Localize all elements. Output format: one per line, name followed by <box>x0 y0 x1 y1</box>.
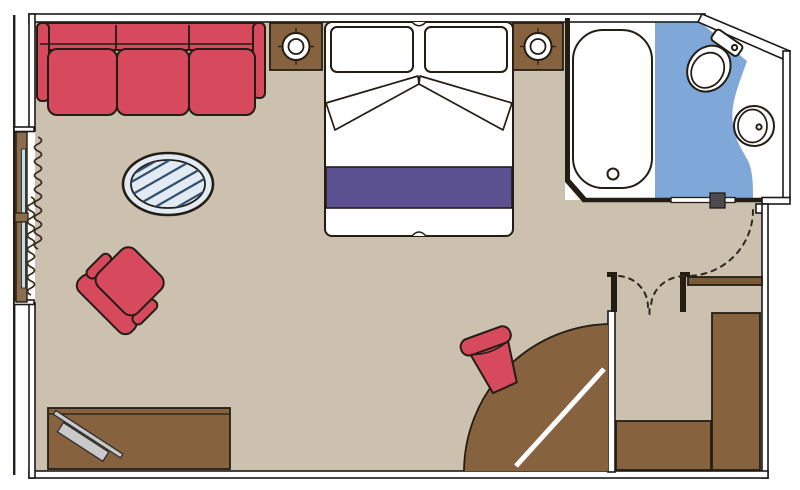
sofa-back <box>37 23 265 50</box>
wardrobe-bottom <box>616 421 711 470</box>
washbasin-faucet <box>756 124 761 129</box>
bathroom-door-handle <box>710 193 725 208</box>
vestibule-partition-wall <box>608 311 615 472</box>
right-wall-step <box>762 198 790 205</box>
right-wall-upper <box>783 51 790 199</box>
bed-pillow-right <box>425 27 507 72</box>
balcony-edge-line <box>13 15 15 475</box>
floor-plan-canvas <box>0 0 800 490</box>
bathtub-body <box>573 30 652 188</box>
bottom-wall <box>29 471 768 478</box>
balcony-door <box>15 132 28 302</box>
sofa-seat-cushion-3 <box>189 49 255 115</box>
wardrobe-right <box>712 313 760 470</box>
left-wall-upper <box>29 14 35 131</box>
right-wall-lower <box>762 204 768 478</box>
balcony-door-handle-bar <box>15 213 28 222</box>
sofa-seat-cushion-1 <box>48 49 117 115</box>
sofa-seat-cushion-2 <box>117 49 189 115</box>
top-wall <box>29 14 705 22</box>
washbasin-counter <box>734 106 774 146</box>
sofa <box>37 23 265 115</box>
bathroom-left-wall <box>565 18 570 182</box>
washbasin <box>734 106 774 146</box>
lamp-right <box>525 33 552 60</box>
balcony-door-jamb-top <box>14 127 34 132</box>
curtain-squiggle-left <box>28 197 35 295</box>
floor-plan-svg <box>0 0 800 490</box>
bathtub <box>573 30 652 188</box>
left-wall-lower <box>29 303 35 478</box>
nightstand-left <box>270 23 322 70</box>
nightstand-right <box>513 23 563 70</box>
luggage-shelf <box>688 277 762 285</box>
toilet-flush-button <box>731 44 738 51</box>
bed-pillow-left <box>331 27 413 72</box>
bed-runner <box>326 167 512 208</box>
double-bed <box>325 22 513 236</box>
desk-tv-unit <box>47 408 230 469</box>
bathtub-drain <box>608 169 619 180</box>
lamp-left <box>283 33 310 60</box>
